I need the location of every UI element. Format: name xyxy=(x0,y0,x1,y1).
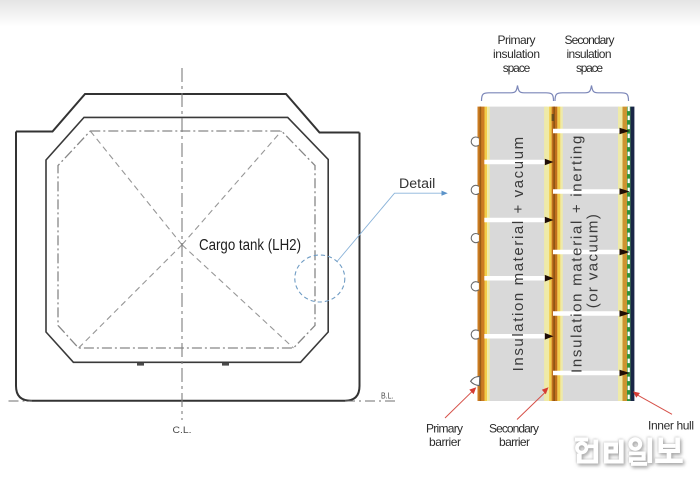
svg-text:insulation: insulation xyxy=(493,47,540,61)
svg-text:Primary: Primary xyxy=(498,33,536,47)
svg-text:B.L.: B.L. xyxy=(381,392,394,401)
svg-text:barrier: barrier xyxy=(429,435,461,449)
svg-text:Insulation material + vacuum: Insulation material + vacuum xyxy=(510,135,527,371)
svg-text:Secondary: Secondary xyxy=(489,422,539,436)
svg-text:Primary: Primary xyxy=(426,422,463,436)
svg-text:space: space xyxy=(503,61,531,75)
svg-text:insulation: insulation xyxy=(567,47,612,61)
svg-text:space: space xyxy=(576,61,603,75)
svg-text:Detail: Detail xyxy=(399,176,435,192)
svg-text:barrier: barrier xyxy=(499,435,530,449)
svg-text:(or vacuum): (or vacuum) xyxy=(585,213,602,308)
svg-text:Secondary: Secondary xyxy=(565,33,615,47)
svg-text:Insulation material + inerting: Insulation material + inerting xyxy=(569,134,586,373)
svg-text:C.L.: C.L. xyxy=(173,425,192,435)
svg-text:Inner hull: Inner hull xyxy=(648,419,694,433)
svg-text:Cargo tank (LH2): Cargo tank (LH2) xyxy=(199,237,301,254)
